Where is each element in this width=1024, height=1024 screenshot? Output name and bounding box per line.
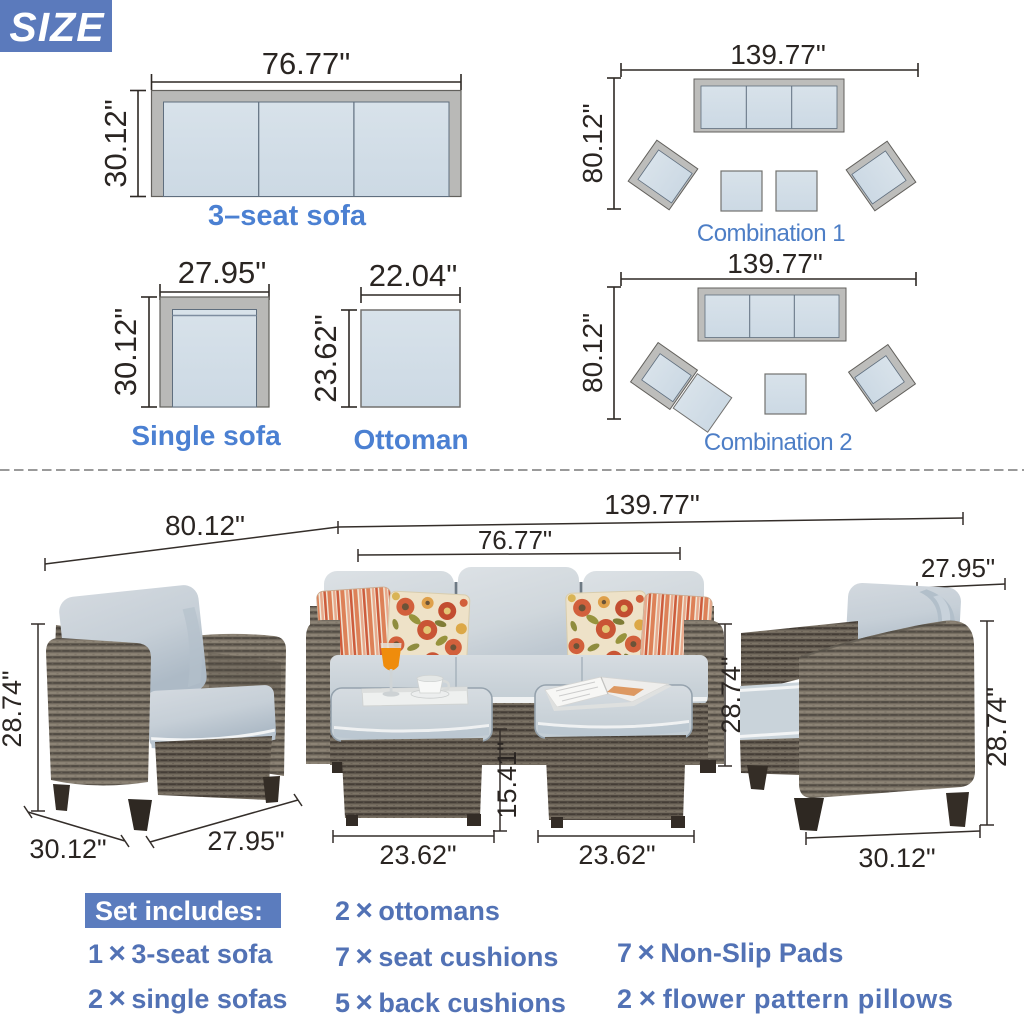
- svg-text:30.12": 30.12": [29, 834, 106, 864]
- svg-text:76.77": 76.77": [262, 46, 351, 81]
- svg-text:27.95": 27.95": [207, 826, 284, 856]
- svg-text:1 × 3-seat sofa: 1 × 3-seat sofa: [88, 937, 273, 970]
- svg-text:2 × flower pattern pillows: 2 × flower pattern pillows: [617, 982, 953, 1015]
- svg-text:7 × Non-Slip Pads: 7 × Non-Slip Pads: [617, 936, 843, 969]
- svg-text:30.12": 30.12": [858, 843, 935, 873]
- svg-text:23.62": 23.62": [578, 840, 655, 870]
- svg-text:Single sofa: Single sofa: [131, 420, 281, 451]
- svg-text:23.62": 23.62": [379, 840, 456, 870]
- svg-text:3–seat sofa: 3–seat sofa: [208, 200, 367, 232]
- svg-text:139.77": 139.77": [730, 39, 826, 70]
- svg-text:2 × ottomans: 2 × ottomans: [335, 894, 500, 927]
- svg-text:30.12": 30.12": [98, 99, 133, 188]
- svg-text:80.12": 80.12": [577, 103, 608, 183]
- svg-text:Combination 2: Combination 2: [704, 429, 852, 456]
- svg-text:28.74": 28.74": [981, 687, 1012, 767]
- svg-text:139.77": 139.77": [727, 248, 823, 279]
- svg-text:2 × single sofas: 2 × single sofas: [88, 982, 287, 1015]
- svg-text:30.12": 30.12": [108, 308, 143, 397]
- svg-text:80.12": 80.12": [577, 313, 608, 393]
- svg-text:SIZE: SIZE: [9, 4, 105, 50]
- svg-text:Combination 1: Combination 1: [697, 220, 845, 247]
- svg-text:28.74": 28.74": [716, 656, 746, 733]
- svg-text:Set includes:: Set includes:: [95, 896, 263, 926]
- svg-text:23.62": 23.62": [308, 314, 343, 403]
- svg-text:139.77": 139.77": [604, 489, 700, 520]
- svg-text:76.77": 76.77": [478, 525, 552, 555]
- svg-text:27.95": 27.95": [921, 553, 995, 583]
- svg-text:27.95": 27.95": [178, 255, 267, 290]
- svg-text:15.41": 15.41": [492, 741, 522, 818]
- svg-text:22.04": 22.04": [369, 258, 458, 293]
- svg-text:28.74": 28.74": [0, 670, 27, 747]
- svg-text:7 × seat cushions: 7 × seat cushions: [335, 940, 558, 973]
- svg-text:80.12": 80.12": [165, 510, 245, 541]
- svg-text:Ottoman: Ottoman: [353, 424, 468, 455]
- svg-text:5 × back cushions: 5 × back cushions: [335, 986, 566, 1019]
